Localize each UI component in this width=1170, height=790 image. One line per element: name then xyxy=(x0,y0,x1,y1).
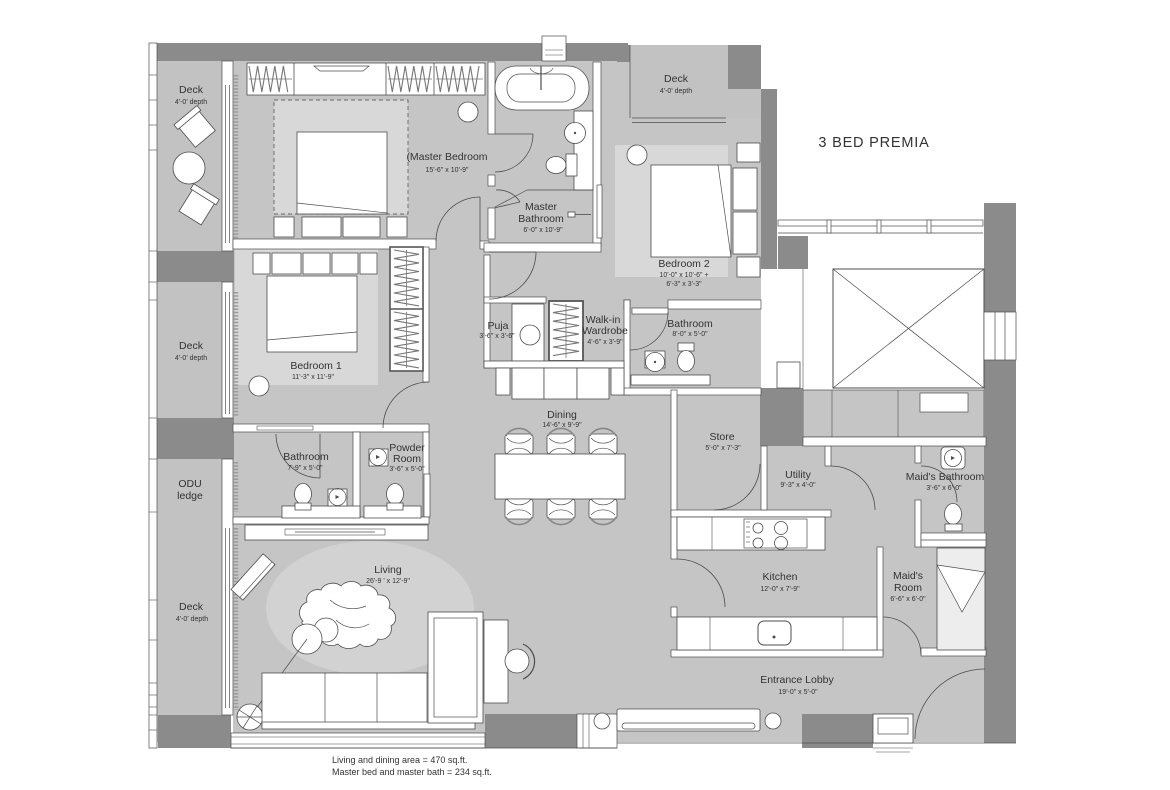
svg-text:Living: Living xyxy=(374,564,402,576)
svg-text:(Master Bedroom: (Master Bedroom xyxy=(406,151,487,163)
svg-text:Deck: Deck xyxy=(179,84,204,96)
svg-text:6'-0" x 10'-9": 6'-0" x 10'-9" xyxy=(523,227,563,234)
svg-text:Master bed and master bath = 2: Master bed and master bath = 234 sq.ft. xyxy=(332,767,492,777)
svg-text:Dining: Dining xyxy=(547,409,577,421)
svg-text:Deck: Deck xyxy=(664,73,689,85)
svg-text:26'-9 ' x 12'-9": 26'-9 ' x 12'-9" xyxy=(366,578,410,585)
svg-text:Deck: Deck xyxy=(179,340,204,352)
svg-text:4'-6" x 3'-9": 4'-6" x 3'-9" xyxy=(587,339,623,346)
svg-text:Master: Master xyxy=(525,201,558,213)
svg-text:19'-0" x 5'-0": 19'-0" x 5'-0" xyxy=(778,689,818,696)
svg-text:Bedroom 2: Bedroom 2 xyxy=(658,258,710,270)
svg-text:Bathroom: Bathroom xyxy=(667,318,713,330)
svg-text:14'-6" x 9'-9": 14'-6" x 9'-9" xyxy=(542,422,582,429)
svg-text:ledge: ledge xyxy=(177,490,203,502)
svg-text:Store: Store xyxy=(709,431,734,443)
svg-text:Room: Room xyxy=(894,582,922,594)
svg-text:ODU: ODU xyxy=(178,478,201,490)
svg-text:8'-0" x 5'-0": 8'-0" x 5'-0" xyxy=(672,331,708,338)
svg-text:10'-0" x 10'-6" +: 10'-0" x 10'-6" + xyxy=(659,272,708,279)
svg-text:Bedroom 1: Bedroom 1 xyxy=(290,360,342,372)
svg-text:3'-6" x 3'-6": 3'-6" x 3'-6" xyxy=(479,333,515,340)
svg-text:3'-6" x 6'-0": 3'-6" x 6'-0" xyxy=(926,485,962,492)
svg-text:4'-0' depth: 4'-0' depth xyxy=(175,355,207,362)
svg-text:4'-0' depth: 4'-0' depth xyxy=(176,616,208,623)
svg-text:Kitchen: Kitchen xyxy=(762,571,797,583)
svg-text:3 BED PREMIA: 3 BED PREMIA xyxy=(818,135,929,151)
svg-text:6'-3" x 3'-3": 6'-3" x 3'-3" xyxy=(666,281,702,288)
svg-text:Living and dining area = 470: Living and dining area = 470 sq.ft. xyxy=(332,755,467,765)
svg-text:4'-0' depth: 4'-0' depth xyxy=(660,88,692,95)
svg-text:12'-0" x 7'-9": 12'-0" x 7'-9" xyxy=(760,586,800,593)
svg-text:Deck: Deck xyxy=(179,601,204,613)
svg-text:4'-0' depth: 4'-0' depth xyxy=(175,99,207,106)
svg-text:Puja: Puja xyxy=(487,320,508,332)
svg-text:Utility: Utility xyxy=(785,469,811,481)
svg-text:7'-9" x 5'-0": 7'-9" x 5'-0" xyxy=(287,465,323,472)
svg-text:6'-6" x 6'-0": 6'-6" x 6'-0" xyxy=(890,596,926,603)
svg-text:Entrance Lobby: Entrance Lobby xyxy=(760,674,834,686)
svg-text:11'-3" x 11'-9": 11'-3" x 11'-9" xyxy=(292,374,335,381)
svg-text:Maid's Bathroom: Maid's Bathroom xyxy=(906,471,985,483)
svg-text:Bathroom: Bathroom xyxy=(518,213,564,225)
svg-text:Room: Room xyxy=(393,453,421,465)
svg-text:Bathroom: Bathroom xyxy=(283,451,329,463)
svg-text:3'-6" x 5'-0": 3'-6" x 5'-0" xyxy=(389,466,425,473)
svg-text:15'-6" x 10'-9": 15'-6" x 10'-9" xyxy=(425,167,469,174)
svg-text:9'-3" x 4'-0": 9'-3" x 4'-0" xyxy=(780,482,816,489)
svg-text:Wardrobe: Wardrobe xyxy=(582,325,628,337)
svg-text:Maid's: Maid's xyxy=(893,570,923,582)
svg-text:5'-0" x 7'-3": 5'-0" x 7'-3" xyxy=(705,445,741,452)
